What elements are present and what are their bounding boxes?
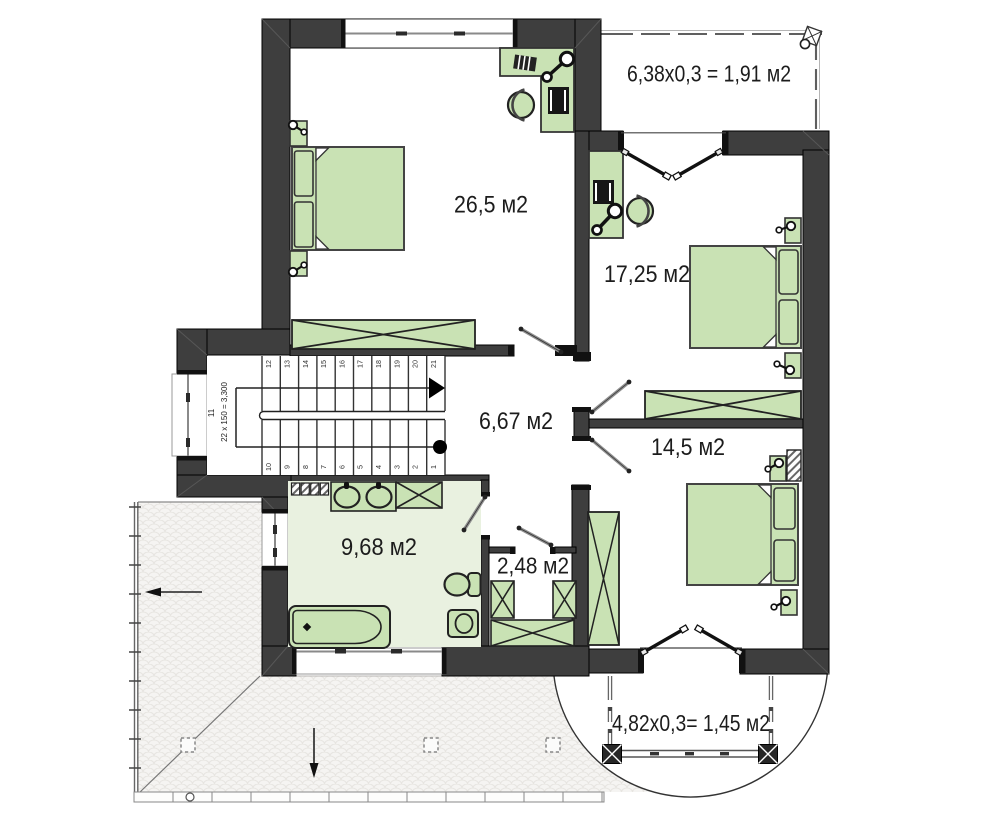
svg-text:26,5 м2: 26,5 м2 <box>454 192 528 219</box>
svg-text:6: 6 <box>337 465 346 469</box>
svg-text:21: 21 <box>429 360 438 368</box>
svg-text:13: 13 <box>283 360 292 368</box>
svg-text:17: 17 <box>356 360 365 368</box>
svg-text:14,5 м2: 14,5 м2 <box>651 434 725 461</box>
svg-text:19: 19 <box>392 360 401 368</box>
svg-text:4,82x0,3= 1,45 м2: 4,82x0,3= 1,45 м2 <box>612 710 770 736</box>
svg-text:10: 10 <box>264 463 273 471</box>
svg-text:5: 5 <box>356 465 365 469</box>
svg-text:7: 7 <box>319 465 328 469</box>
svg-text:2: 2 <box>411 465 420 469</box>
svg-text:1: 1 <box>429 465 438 469</box>
svg-text:9: 9 <box>283 465 292 469</box>
svg-text:3: 3 <box>392 465 401 469</box>
svg-text:8: 8 <box>301 465 310 469</box>
svg-text:20: 20 <box>411 360 420 368</box>
svg-text:6,38x0,3 = 1,91 м2: 6,38x0,3 = 1,91 м2 <box>627 61 791 87</box>
svg-text:22 x 150 = 3,300: 22 x 150 = 3,300 <box>220 382 229 442</box>
svg-text:18: 18 <box>374 360 383 368</box>
svg-text:2,48 м2: 2,48 м2 <box>497 553 569 579</box>
svg-text:4: 4 <box>374 465 383 469</box>
svg-text:17,25 м2: 17,25 м2 <box>604 261 690 288</box>
svg-text:12: 12 <box>264 360 273 368</box>
svg-text:14: 14 <box>301 360 310 368</box>
svg-text:6,67 м2: 6,67 м2 <box>479 408 553 435</box>
svg-text:15: 15 <box>319 360 328 368</box>
svg-text:16: 16 <box>337 360 346 368</box>
svg-text:9,68 м2: 9,68 м2 <box>341 534 417 561</box>
svg-text:11: 11 <box>207 408 216 417</box>
